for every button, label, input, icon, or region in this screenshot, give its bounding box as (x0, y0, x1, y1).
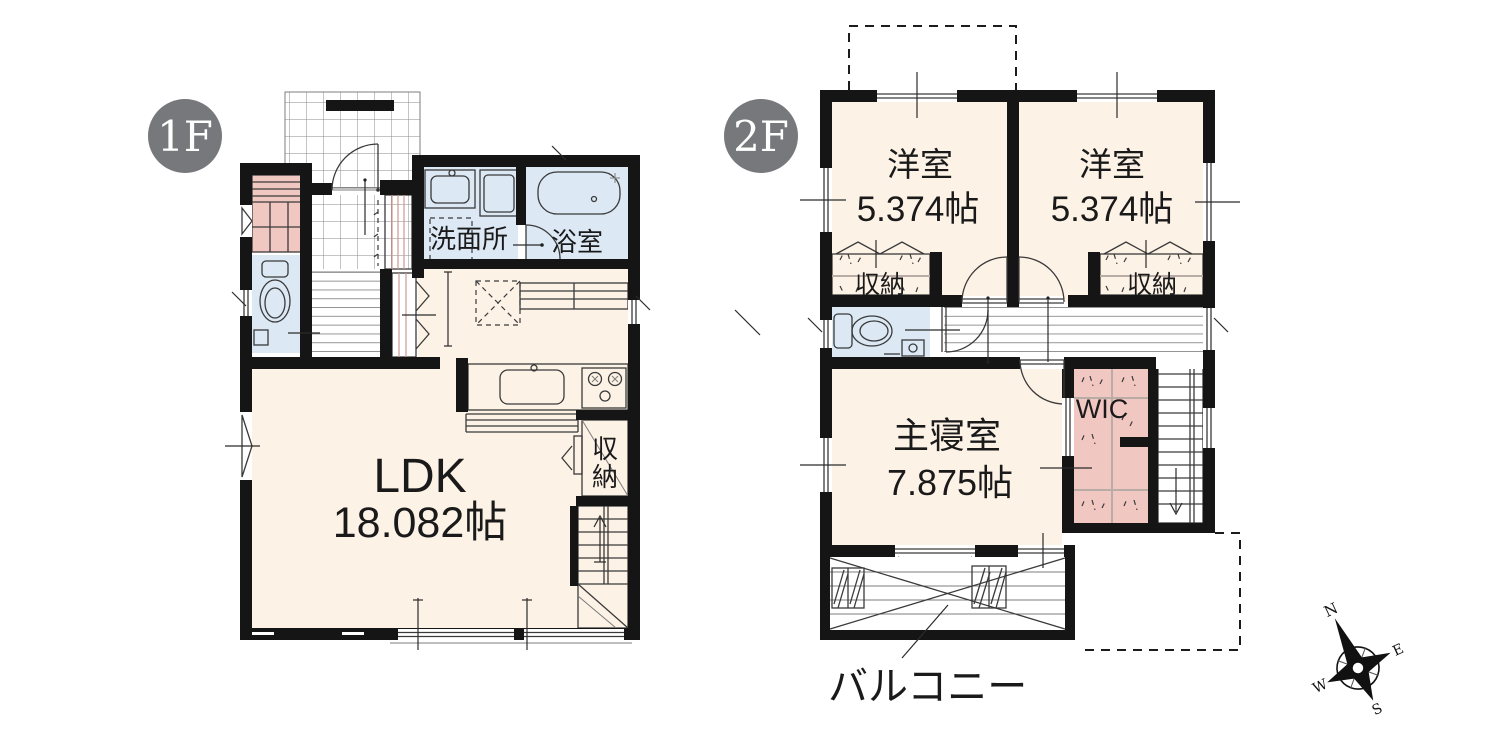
compass-n-label: N (1321, 599, 1341, 621)
washroom-label: 洗面所 (430, 224, 508, 254)
floor-plan-page: LDK 18.082帖 洗面所 浴室 収 納 1F (0, 0, 1500, 750)
window-left-toilet-2f (808, 318, 832, 348)
wic-label: WIC (1076, 394, 1128, 424)
master-bedroom-floor (832, 369, 1062, 545)
master-bedroom-label: 主寝室 (893, 415, 1001, 456)
roof-outline-bottom-right (1078, 533, 1240, 650)
bath-label: 浴室 (551, 227, 603, 257)
floor-badge-1f-label: 1F (157, 112, 213, 161)
window-right-stairs (1203, 408, 1215, 448)
floor-badge-2f-label: 2F (733, 112, 789, 161)
window-right-ldk (628, 296, 650, 324)
floor-badge-2f: 2F (724, 99, 798, 173)
western-room-b-size: 5.374帖 (1051, 190, 1174, 229)
floor-plan-1f: LDK 18.082帖 洗面所 浴室 収 納 1F (148, 92, 650, 650)
western-room-b-label: 洋室 (1079, 146, 1145, 183)
stairs-opening-2f (1156, 357, 1203, 369)
closet-b-label: 収納 (1127, 271, 1177, 299)
wic-closet (1074, 369, 1148, 523)
roof-outline-top (849, 26, 1016, 90)
window-left-toilet (232, 290, 252, 316)
toilet-room-1f (252, 255, 300, 353)
compass-rose: N E S W (1283, 581, 1426, 738)
wic-door (1062, 398, 1074, 456)
ldk-size-label: 18.082帖 (333, 499, 508, 547)
floor-badge-1f: 1F (148, 99, 222, 173)
floor-plan-canvas: LDK 18.082帖 洗面所 浴室 収 納 1F (0, 0, 1500, 750)
stairs-2f (1158, 361, 1203, 523)
balcony-label: バルコニー (828, 665, 1027, 709)
hallway-floorboards (312, 269, 383, 357)
compass-w-label: W (1310, 676, 1330, 697)
window-right-hall (1203, 308, 1228, 350)
shoe-cabinet (252, 175, 305, 252)
compass-star (1304, 603, 1406, 715)
floor-plan-2f: 洋室 5.374帖 洋室 5.374帖 収納 収納 主寝室 7.875帖 WIC… (724, 26, 1240, 709)
ldk-label: LDK (373, 450, 466, 503)
balcony (830, 557, 1065, 658)
compass-s-label: S (1370, 700, 1385, 719)
storage-1f-label-char1: 収 (592, 434, 618, 464)
compass-e-label: E (1390, 641, 1406, 660)
storage-1f-label-char2: 納 (592, 462, 618, 492)
western-room-a-size: 5.374帖 (857, 190, 980, 229)
closet-a-label: 収納 (855, 271, 905, 299)
western-room-a-label: 洋室 (887, 146, 953, 183)
genkan-tiles (312, 195, 416, 269)
window-left-shoe (240, 205, 252, 237)
master-bedroom-size: 7.875帖 (887, 462, 1013, 503)
